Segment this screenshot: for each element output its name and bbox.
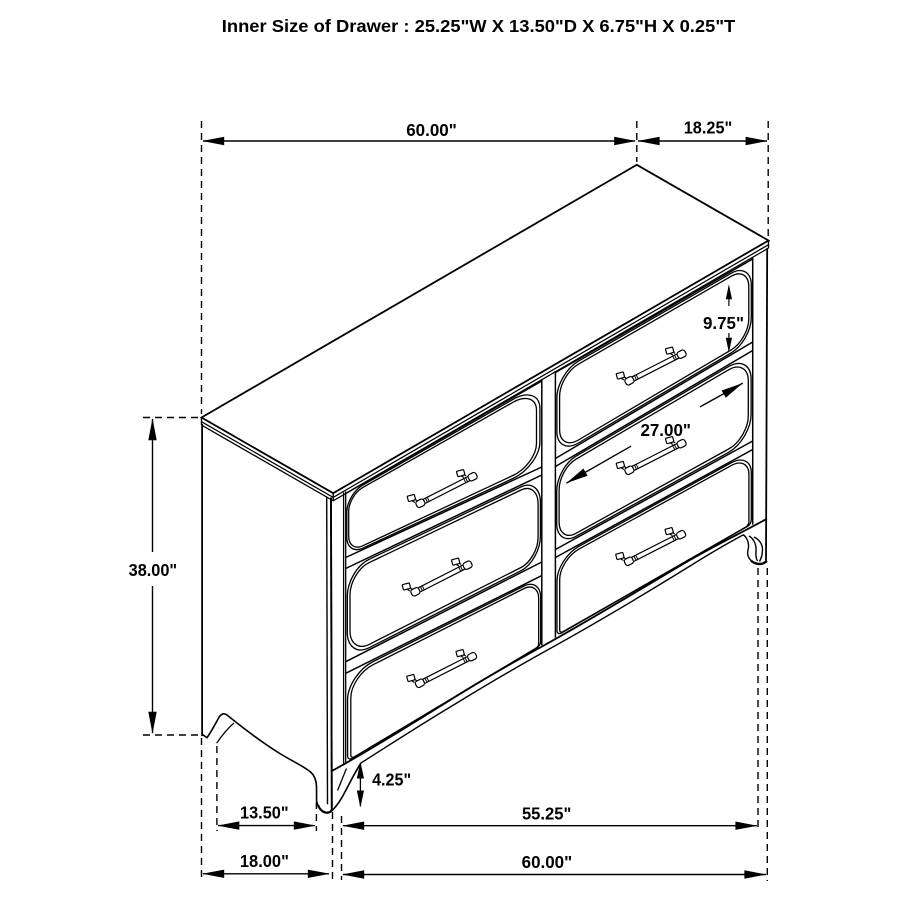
svg-text:13.50": 13.50" bbox=[240, 802, 289, 822]
svg-text:Inner Size of Drawer : 25.25"W: Inner Size of Drawer : 25.25"W X 13.50"D… bbox=[222, 16, 736, 36]
svg-text:60.00": 60.00" bbox=[522, 852, 573, 872]
svg-text:55.25": 55.25" bbox=[522, 804, 572, 824]
svg-text:18.00": 18.00" bbox=[240, 851, 289, 871]
svg-text:18.25": 18.25" bbox=[684, 118, 733, 138]
svg-text:60.00": 60.00" bbox=[406, 120, 457, 140]
svg-text:9.75": 9.75" bbox=[703, 313, 744, 333]
svg-text:27.00": 27.00" bbox=[640, 420, 691, 440]
svg-text:38.00": 38.00" bbox=[129, 560, 178, 580]
svg-text:4.25": 4.25" bbox=[372, 770, 411, 790]
